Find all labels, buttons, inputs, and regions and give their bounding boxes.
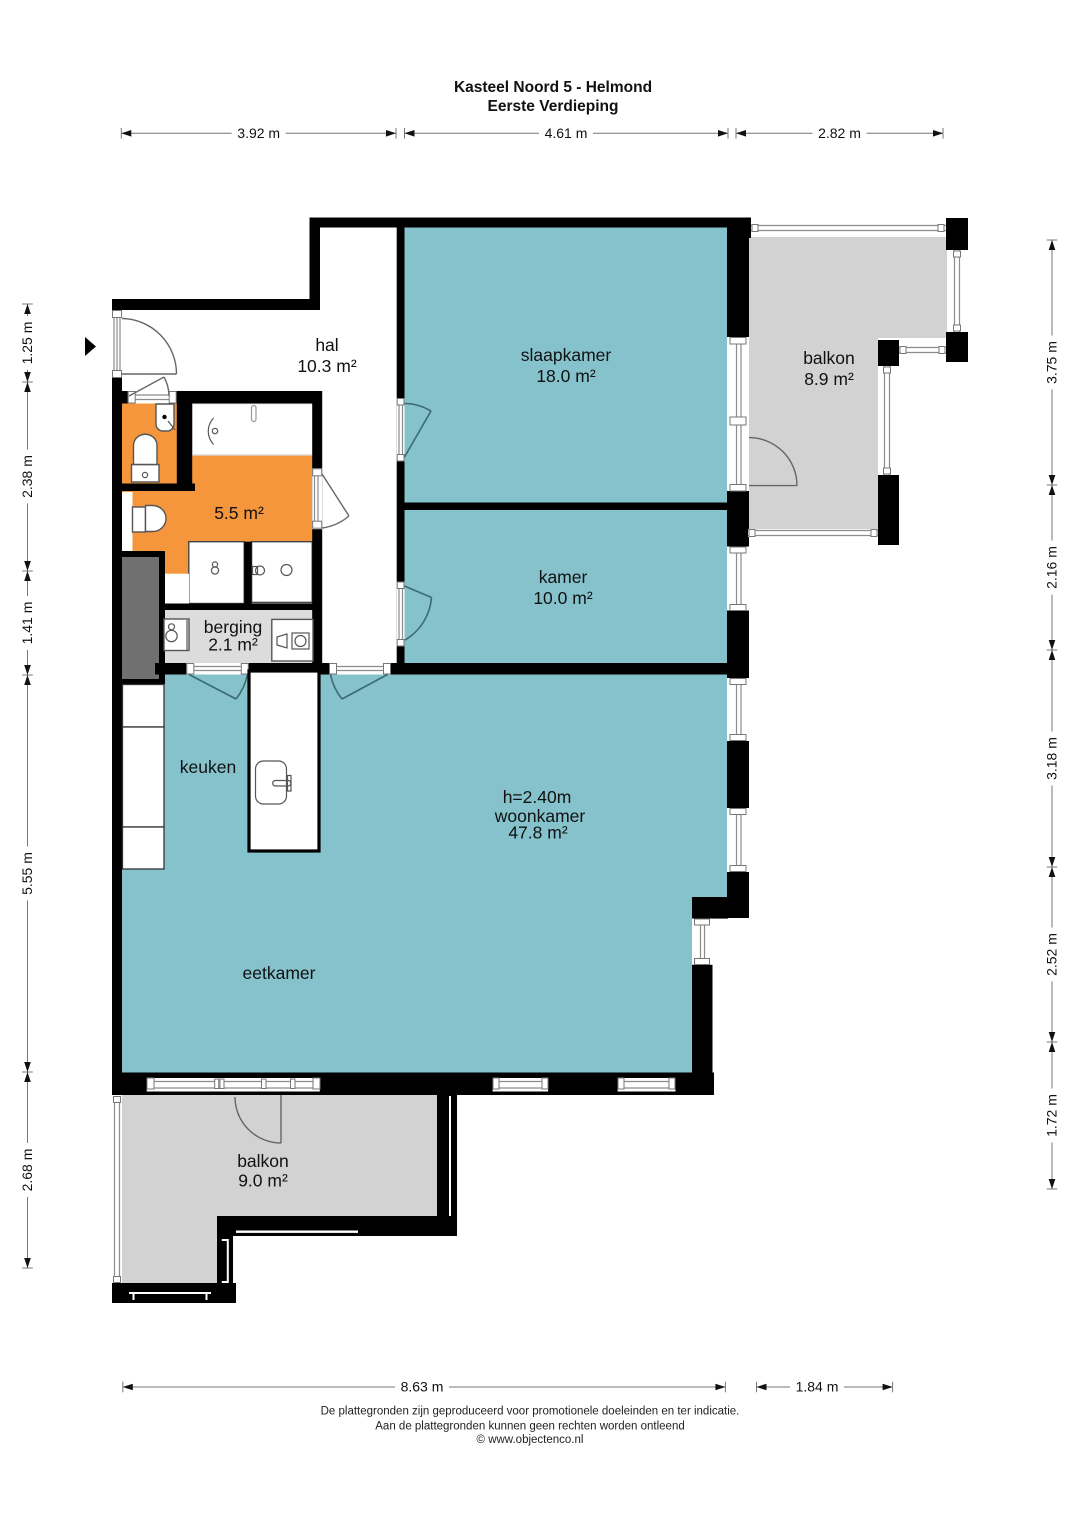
svg-text:balkon: balkon — [803, 348, 855, 368]
svg-text:8.9 m²: 8.9 m² — [804, 369, 854, 389]
svg-text:slaapkamer: slaapkamer — [521, 345, 612, 365]
svg-text:h=2.40m: h=2.40m — [503, 787, 572, 807]
svg-text:2.1 m²: 2.1 m² — [208, 635, 258, 655]
svg-text:De plattegronden zijn geproduc: De plattegronden zijn geproduceerd voor … — [321, 1406, 740, 1418]
svg-text:eetkamer: eetkamer — [243, 963, 316, 983]
svg-text:© www.objectenco.nl: © www.objectenco.nl — [477, 1434, 584, 1446]
svg-text:10.3 m²: 10.3 m² — [297, 356, 356, 376]
svg-text:hal: hal — [315, 335, 338, 355]
svg-text:3.18 m: 3.18 m — [1044, 737, 1060, 780]
svg-text:keuken: keuken — [180, 757, 236, 777]
svg-text:kamer: kamer — [539, 567, 588, 587]
svg-text:2.52 m: 2.52 m — [1044, 933, 1060, 976]
svg-text:2.68 m: 2.68 m — [19, 1149, 35, 1192]
svg-text:Kasteel Noord 5 - Helmond: Kasteel Noord 5 - Helmond — [454, 79, 652, 96]
svg-text:1.84 m: 1.84 m — [796, 1379, 839, 1395]
svg-text:5.55 m: 5.55 m — [19, 852, 35, 895]
svg-text:balkon: balkon — [237, 1151, 289, 1171]
svg-text:10.0 m²: 10.0 m² — [533, 588, 592, 608]
svg-text:2.38 m: 2.38 m — [19, 455, 35, 498]
svg-text:2.16 m: 2.16 m — [1044, 546, 1060, 589]
svg-text:Eerste Verdieping: Eerste Verdieping — [488, 98, 619, 115]
svg-text:8.63 m: 8.63 m — [401, 1379, 444, 1395]
svg-text:1.41 m: 1.41 m — [19, 602, 35, 645]
svg-text:3.92 m: 3.92 m — [237, 125, 280, 141]
svg-text:2.82 m: 2.82 m — [818, 125, 861, 141]
svg-text:9.0 m²: 9.0 m² — [238, 1171, 288, 1191]
svg-text:1.25 m: 1.25 m — [19, 322, 35, 365]
svg-text:3.75 m: 3.75 m — [1044, 341, 1060, 384]
svg-text:1.72 m: 1.72 m — [1044, 1094, 1060, 1137]
svg-text:Aan de plattegronden kunnen ge: Aan de plattegronden kunnen geen rechten… — [375, 1421, 684, 1433]
svg-text:47.8 m²: 47.8 m² — [508, 823, 567, 843]
svg-text:18.0 m²: 18.0 m² — [536, 366, 595, 386]
svg-text:4.61 m: 4.61 m — [545, 125, 588, 141]
svg-text:5.5 m²: 5.5 m² — [214, 503, 264, 523]
